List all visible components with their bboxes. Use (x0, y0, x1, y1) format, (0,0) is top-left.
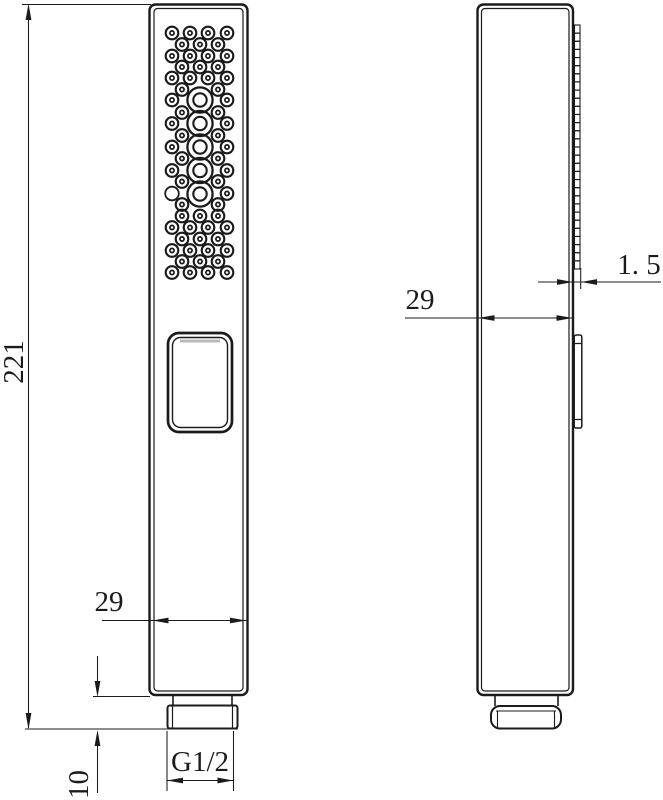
side-connector-nut-end-lines (498, 711, 555, 728)
nozzle-outer-ring (221, 244, 234, 257)
nozzle-center-dot (225, 248, 229, 252)
nozzle-outer-ring (176, 233, 189, 246)
nozzle-outer-ring (221, 187, 234, 200)
nozzle-outer-ring (212, 129, 225, 142)
nozzle-center-dot (170, 145, 174, 149)
nozzle-outer-ring (202, 50, 215, 63)
dim-221-arrow-down-icon (26, 713, 32, 730)
dim-side-29-arrow-right-icon (557, 315, 573, 321)
nozzle-center-dot (180, 237, 184, 241)
spray-plate-segment (575, 228, 581, 236)
nozzle-center-dot (180, 110, 184, 114)
big-nozzle-outer-ring (187, 134, 212, 159)
spray-plate-segment (575, 90, 581, 98)
spray-plate-segment (575, 114, 581, 122)
nozzle-outer-ring (212, 233, 225, 246)
spray-nozzle-face (165, 27, 233, 279)
nozzle-center-dot (216, 179, 220, 183)
nozzle-center-dot (216, 110, 220, 114)
spray-plate-segment (575, 33, 581, 41)
spray-plate-segment (575, 74, 581, 82)
dim-15-label: 1. 5 (617, 249, 661, 281)
nozzle-outer-ring (176, 38, 189, 51)
nozzle-outer-ring (212, 106, 225, 119)
nozzle-center-dot (216, 65, 220, 69)
nozzle-outer-ring (184, 27, 197, 40)
nozzle-outer-ring (166, 164, 179, 177)
nozzle-center-dot (225, 76, 229, 80)
nozzle-outer-ring (166, 266, 179, 279)
big-nozzle-outer-ring (187, 87, 212, 112)
nozzle-center-dot (180, 179, 184, 183)
mode-button-outline (168, 333, 232, 432)
nozzle-center-dot (170, 121, 174, 125)
spray-plate-segment (575, 41, 581, 49)
nozzle-center-dot (198, 65, 202, 69)
spray-plate-segment (575, 25, 581, 33)
nozzle-center-dot (198, 214, 202, 218)
spray-plate-segment (575, 171, 581, 179)
dim-10-arrow-down-icon (95, 681, 101, 697)
nozzle-center-dot (180, 259, 184, 263)
nozzle-outer-ring (176, 175, 189, 188)
nozzle-center-dot (180, 133, 184, 137)
nozzle-outer-ring (184, 266, 197, 279)
nozzle-center-dot (188, 248, 192, 252)
spray-plate-segment (575, 123, 581, 131)
nozzle-center-dot (206, 225, 210, 229)
dim-g12-arrow-right-icon (218, 778, 234, 784)
handshower-technical-drawing: 221 29 10 G1/2 29 (0, 0, 663, 800)
nozzle-center-dot (188, 76, 192, 80)
nozzle-center-dot (170, 98, 174, 102)
spray-plate-side-profile (575, 25, 581, 269)
nozzle-center-dot (225, 168, 229, 172)
nozzle-outer-ring (176, 255, 189, 268)
dim-front-29-label: 29 (95, 586, 124, 618)
nozzle-outer-ring (221, 94, 234, 107)
nozzle-outer-ring (166, 50, 179, 63)
dim-front-29-arrow-left-icon (153, 618, 169, 624)
dim-front-width: 29 (95, 586, 248, 623)
nozzle-outer-ring (176, 129, 189, 142)
nozzle-center-dot (170, 225, 174, 229)
dim-15-arrow-left-icon (581, 279, 597, 285)
nozzle-center-dot (225, 98, 229, 102)
spray-plate-segment (575, 106, 581, 114)
big-nozzle-inner-ring (193, 93, 206, 106)
spray-plate-segment (575, 66, 581, 74)
nozzle-outer-ring (194, 210, 207, 223)
dim-thread: G1/2 (167, 731, 234, 791)
nozzle-center-dot (170, 76, 174, 80)
spray-plate-segment (575, 236, 581, 244)
nozzle-center-dot (188, 54, 192, 58)
side-body-inner-line (482, 9, 570, 692)
front-connector (168, 696, 238, 729)
dim-221-arrow-up-icon (26, 4, 32, 21)
nozzle-outer-ring (202, 27, 215, 40)
nozzle-outer-ring (166, 72, 179, 85)
big-nozzle-outer-ring (187, 158, 212, 183)
nozzle-center-dot (198, 237, 202, 241)
nozzle-outer-ring (166, 94, 179, 107)
spray-plate-segment (575, 253, 581, 261)
nozzle-center-dot (180, 156, 184, 160)
nozzle-outer-ring (221, 117, 234, 130)
nozzle-center-dot (216, 214, 220, 218)
dim-10-label: 10 (63, 770, 95, 799)
nozzle-center-dot (206, 54, 210, 58)
nozzle-outer-ring (184, 221, 197, 234)
nozzle-center-dot (170, 31, 174, 35)
nozzle-outer-ring (212, 175, 225, 188)
nozzle-center-dot (180, 202, 184, 206)
nozzle-outer-ring (166, 117, 179, 130)
nozzle-outer-ring (212, 152, 225, 165)
spray-plate-segment (575, 139, 581, 147)
side-connector (491, 696, 561, 729)
nozzle-center-dot (170, 54, 174, 58)
dimension-annotations: 221 29 10 G1/2 29 (0, 4, 661, 800)
dim-g12-arrow-left-icon (167, 778, 183, 784)
dim-side-width: 29 (405, 284, 573, 321)
nozzle-center-dot (206, 31, 210, 35)
nozzle-outer-ring (221, 50, 234, 63)
nozzle-outer-ring (166, 221, 179, 234)
front-connector-nut (168, 706, 238, 729)
front-connector-nut-inner-lines (173, 706, 233, 729)
nozzle-center-dot (170, 270, 174, 274)
nozzle-center-dot (206, 248, 210, 252)
spray-plate-segment (575, 204, 581, 212)
dim-15-arrow-right-icon (557, 279, 573, 285)
nozzle-center-dot (225, 54, 229, 58)
spray-plate-segment (575, 98, 581, 106)
nozzle-outer-ring (212, 255, 225, 268)
nozzle-center-dot (180, 214, 184, 218)
big-nozzle-outer-ring (187, 181, 212, 206)
nozzle-center-dot (180, 42, 184, 46)
nozzle-outer-ring (166, 141, 179, 154)
spray-plate-segment (575, 261, 581, 269)
nozzle-outer-ring (176, 61, 189, 74)
nozzle-center-dot (206, 76, 210, 80)
spray-plate-segment (575, 131, 581, 139)
side-view (478, 5, 582, 729)
big-nozzle-outer-ring (187, 111, 212, 136)
front-connector-neck (173, 696, 232, 706)
spray-plate-segment (575, 196, 581, 204)
dim-side-29-label: 29 (406, 284, 435, 316)
nozzle-center-dot (198, 42, 202, 46)
nozzle-center-dot (216, 156, 220, 160)
spray-plate-segment (575, 163, 581, 171)
nozzle-outer-ring (176, 106, 189, 119)
nozzle-center-dot (216, 202, 220, 206)
plain-nozzle-ring (165, 187, 179, 201)
spray-plate-segment (575, 220, 581, 228)
mode-button-inner-line (173, 338, 228, 428)
dim-g12-label: G1/2 (171, 746, 229, 778)
nozzle-outer-ring (184, 50, 197, 63)
dim-10-arrow-up-icon (95, 730, 101, 746)
nozzle-outer-ring (166, 244, 179, 257)
mode-button (168, 333, 232, 432)
nozzle-outer-ring (212, 38, 225, 51)
nozzle-outer-ring (194, 255, 207, 268)
big-nozzle-inner-ring (193, 140, 206, 153)
nozzle-center-dot (216, 42, 220, 46)
nozzle-outer-ring (221, 72, 234, 85)
spray-plate-segment (575, 82, 581, 90)
nozzle-outer-ring (176, 152, 189, 165)
nozzle-outer-ring (212, 61, 225, 74)
nozzle-center-dot (225, 270, 229, 274)
nozzle-center-dot (188, 270, 192, 274)
dim-connector-height: 10 (63, 656, 150, 799)
nozzle-center-dot (216, 133, 220, 137)
nozzle-outer-ring (194, 61, 207, 74)
spray-plate-segment (575, 49, 581, 57)
nozzle-center-dot (188, 225, 192, 229)
dim-front-29-arrow-right-icon (230, 618, 246, 624)
big-nozzle-inner-ring (193, 164, 206, 177)
dim-221-label: 221 (0, 340, 30, 384)
dim-plate-thickness: 1. 5 (538, 249, 661, 289)
nozzle-center-dot (225, 191, 229, 195)
nozzle-center-dot (225, 145, 229, 149)
spray-plate-segment (575, 245, 581, 253)
nozzle-outer-ring (221, 141, 234, 154)
side-mode-button (574, 335, 582, 428)
nozzle-outer-ring (202, 266, 215, 279)
nozzle-outer-ring (212, 83, 225, 96)
nozzle-center-dot (225, 225, 229, 229)
nozzle-center-dot (206, 270, 210, 274)
nozzle-outer-ring (194, 233, 207, 246)
spray-plate-segment (575, 147, 581, 155)
nozzle-center-dot (198, 259, 202, 263)
nozzle-center-dot (170, 168, 174, 172)
nozzle-center-dot (225, 121, 229, 125)
nozzle-outer-ring (221, 27, 234, 40)
nozzle-outer-ring (184, 72, 197, 85)
nozzle-outer-ring (166, 27, 179, 40)
nozzle-center-dot (180, 87, 184, 91)
nozzle-outer-ring (184, 244, 197, 257)
nozzle-center-dot (180, 65, 184, 69)
spray-plate-segment (575, 155, 581, 163)
nozzle-outer-ring (176, 83, 189, 96)
nozzle-outer-ring (202, 244, 215, 257)
nozzle-center-dot (225, 31, 229, 35)
nozzle-outer-ring (194, 38, 207, 51)
nozzle-center-dot (216, 259, 220, 263)
nozzle-outer-ring (202, 72, 215, 85)
nozzle-center-dot (188, 31, 192, 35)
side-body-outline (478, 5, 574, 696)
side-connector-neck (495, 696, 558, 707)
nozzle-outer-ring (202, 221, 215, 234)
big-nozzle-inner-ring (193, 117, 206, 130)
big-nozzle-inner-ring (193, 187, 206, 200)
side-mode-button-caps (574, 344, 582, 420)
spray-plate-segment (575, 58, 581, 66)
spray-plate-segment (575, 188, 581, 196)
side-mode-button-outline (574, 335, 582, 428)
nozzle-center-dot (216, 237, 220, 241)
nozzle-outer-ring (221, 221, 234, 234)
spray-plate-segment (575, 212, 581, 220)
nozzle-outer-ring (221, 164, 234, 177)
spray-plate-segment (575, 180, 581, 188)
nozzle-center-dot (216, 87, 220, 91)
side-connector-nut (491, 706, 561, 729)
nozzle-center-dot (170, 248, 174, 252)
nozzle-outer-ring (221, 266, 234, 279)
